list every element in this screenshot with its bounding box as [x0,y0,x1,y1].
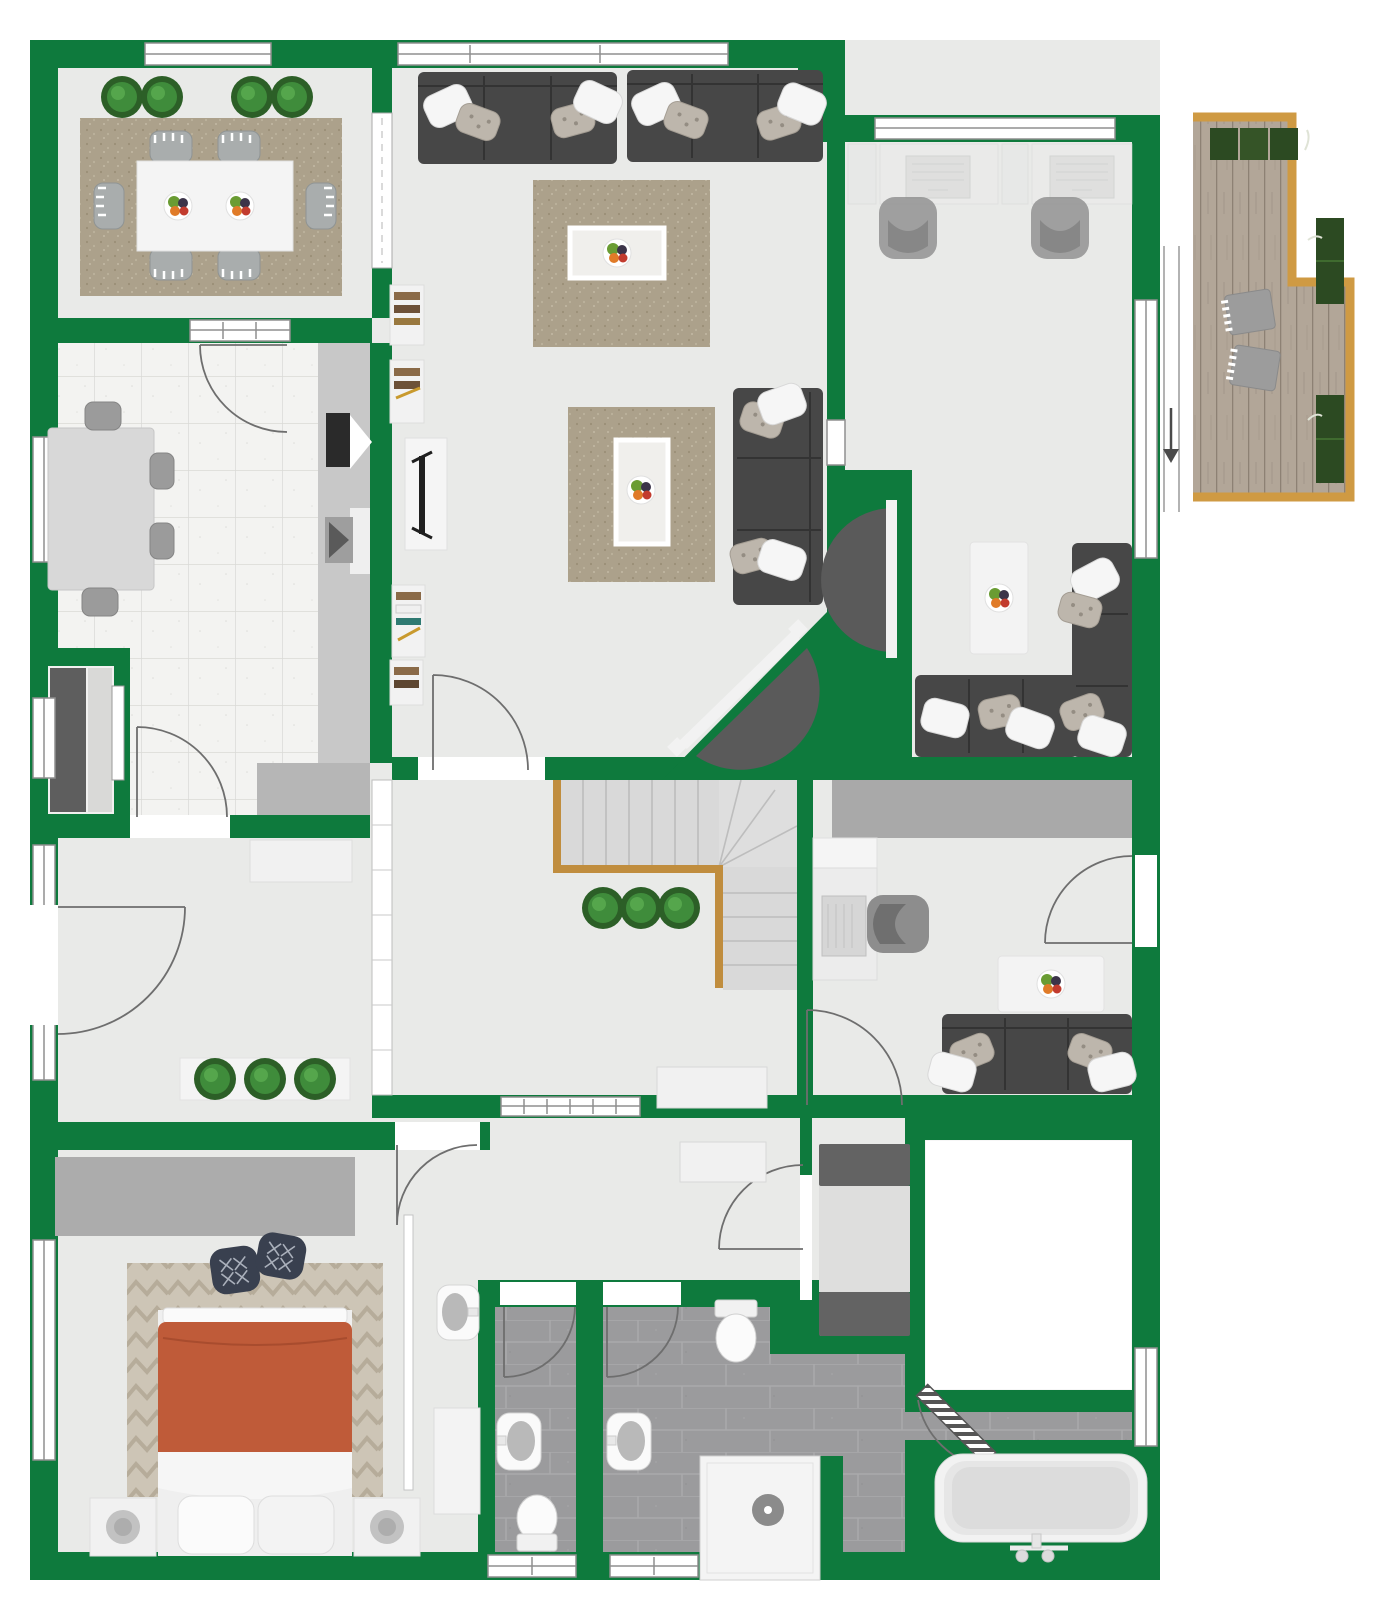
closet [55,1157,355,1236]
chair [150,523,174,559]
office-chair [867,895,929,953]
floor-plan-canvas [0,0,1374,1612]
cooktop [326,413,350,467]
fruit-bowl [627,476,655,504]
washer [819,1144,910,1186]
duvet [158,1322,352,1460]
tv-cabinet [405,438,447,550]
toilet [517,1495,557,1551]
chair [82,588,118,616]
corner-sofa [728,380,823,605]
fruit-bowl [1037,970,1065,998]
fruit-bowl [603,239,631,267]
shower [700,1456,820,1580]
sink [607,1413,651,1470]
entry-arrow-icon [1163,408,1179,463]
niche-door [112,686,124,780]
unfinished-room-floor [925,1140,1132,1390]
fruit-bowl [985,584,1013,612]
sofa [418,72,626,164]
deck-rail-lines [1164,246,1179,512]
sink [497,1413,541,1470]
pillow [178,1496,254,1554]
floor-plan [0,0,1374,1612]
bedroom-divider [404,1215,413,1490]
fruit-bowl [226,192,254,220]
utility-room [819,1144,910,1336]
dining-table [137,161,293,251]
fruit-bowl [164,192,192,220]
fridge-niche [48,666,124,814]
deck [1163,113,1354,512]
wardrobe [832,780,1132,838]
breakfast-table [48,428,154,590]
chair [85,402,121,430]
dryer [819,1292,910,1336]
deck-lounger [1220,289,1276,336]
ghost-desks [848,144,1132,204]
sheet [158,1452,352,1499]
deck-lounger [1225,344,1281,391]
chair [150,453,174,489]
sideboard [250,840,352,882]
dresser [434,1408,480,1514]
sofa [627,70,830,162]
bench [657,1067,767,1108]
office-chair [879,197,937,259]
counter-return [257,763,370,815]
double-bed [158,1308,352,1556]
pillow [258,1496,334,1554]
office-chair [1031,197,1089,259]
tv-icon [419,456,425,534]
toilet [715,1300,757,1362]
pouf [208,1244,262,1296]
shelf-partition [372,780,392,1095]
sideboard [680,1142,766,1182]
sofa [925,1014,1138,1094]
wash-basin [437,1285,479,1340]
